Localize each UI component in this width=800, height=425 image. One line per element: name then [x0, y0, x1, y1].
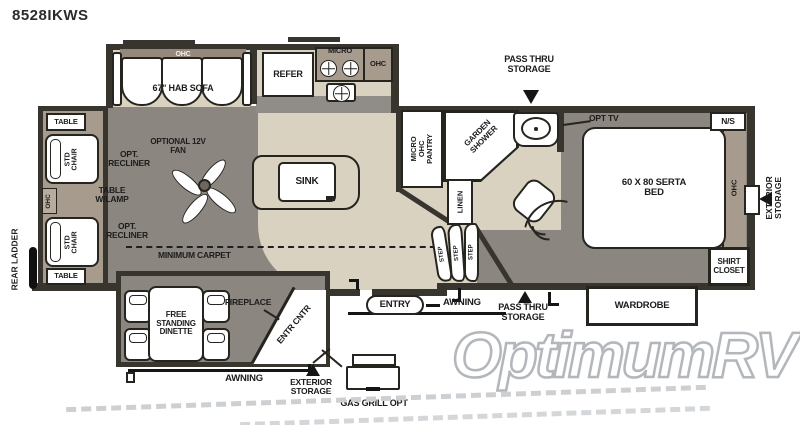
- entry-door: ENTRY: [366, 295, 424, 315]
- opt-recliner-2-label: OPT. RECLINER: [98, 222, 156, 240]
- ext-storage-right-label: EXTERIOR STORAGE: [765, 176, 783, 219]
- refer-label: REFER: [273, 70, 303, 80]
- dinette-table: FREE STANDING DINETTE: [148, 286, 204, 362]
- sofa: [121, 57, 243, 106]
- table-lamp-label: TABLE W/LAMP: [88, 186, 136, 204]
- awning-right-label: AWNING: [443, 298, 493, 308]
- step-label: STEP: [468, 245, 474, 261]
- burner-icon: [320, 60, 337, 77]
- counter-dashed-line: [315, 81, 393, 82]
- floorplan: 8528IKWS TABLE STD CHAIR OHC STD CHAIR T…: [0, 0, 800, 425]
- table-bottom-box: TABLE: [46, 268, 86, 285]
- sofa-cushion: [161, 57, 203, 106]
- ext-storage-right-labelwrap: EXTERIOR STORAGE: [756, 170, 792, 226]
- ext-storage-bottom-label: EXTERIOR STORAGE: [280, 378, 342, 396]
- sink-faucet: [326, 196, 335, 201]
- rear-ladder-label: REAR LADDER: [11, 228, 20, 290]
- min-carpet-label: MINIMUM CARPET: [158, 251, 268, 260]
- fireplace-label: FIREPLACE: [220, 298, 276, 307]
- std-chair-1-labelwrap: STD CHAIR: [45, 134, 99, 184]
- rear-ladder-icon: [29, 247, 37, 289]
- awning-end-bracket: [126, 372, 135, 383]
- table-bottom-label: TABLE: [54, 272, 77, 280]
- table-top-box: TABLE: [46, 113, 86, 131]
- door-hinge-mark: [349, 279, 357, 282]
- shirt-closet: SHIRT CLOSET: [708, 247, 750, 286]
- watermark-road-line: [240, 406, 710, 425]
- table-top-label: TABLE: [54, 118, 77, 126]
- sofa-cushion: [201, 57, 243, 106]
- sofa-armrest-right: [242, 52, 252, 106]
- left-ohc-labelwrap: OHC: [40, 188, 59, 214]
- watermark: OptimumRV: [452, 318, 795, 392]
- dinette-chair: [202, 328, 230, 361]
- slide-topper-bar-right: [288, 37, 340, 42]
- awning-line-left: [128, 369, 310, 372]
- bed: 60 X 80 SERTA BED: [582, 127, 726, 249]
- up-arrow-icon: [306, 364, 320, 376]
- door-hinge-mark: [551, 303, 559, 306]
- down-arrow-icon: [523, 90, 539, 104]
- fan-label: OPTIONAL 12V FAN: [146, 138, 210, 155]
- sofa-cushion: [121, 57, 163, 106]
- pantry-labelwrap: MICRO OHC PANTRY: [401, 110, 443, 188]
- linen-label: LINEN: [456, 191, 464, 214]
- step-label: STEP: [437, 246, 446, 262]
- kitchen-counter: [256, 96, 393, 113]
- page-title: 8528IKWS: [12, 8, 89, 24]
- refrigerator: REFER: [262, 52, 314, 97]
- step-label: STEP: [453, 245, 460, 261]
- left-ohc-label: OHC: [46, 194, 53, 208]
- micro-label: MICRO: [318, 47, 362, 55]
- wardrobe-label: WARDROBE: [615, 301, 670, 311]
- shirt-closet-label: SHIRT CLOSET: [711, 258, 747, 275]
- burner-icon: [342, 60, 359, 77]
- gas-grill-icon: [352, 354, 396, 366]
- dinette-label: FREE STANDING DINETTE: [151, 311, 201, 337]
- entry-label: ENTRY: [380, 300, 411, 310]
- sink-label: SINK: [295, 177, 318, 188]
- std-chair-2-label: STD CHAIR: [65, 227, 80, 257]
- opt-tv-label: OPT TV: [589, 114, 631, 123]
- std-chair-1-label: STD CHAIR: [65, 144, 80, 174]
- bed-ohc-label: OHC: [730, 180, 738, 197]
- pantry-label: MICRO OHC PANTRY: [410, 128, 434, 170]
- awning-left-label: AWNING: [214, 374, 274, 384]
- linen-labelwrap: LINEN: [447, 179, 473, 225]
- min-carpet-line: [126, 246, 446, 248]
- sofa-label: 67" HAB SOFA: [136, 84, 230, 94]
- burner-icon: [333, 85, 350, 102]
- std-chair-2-labelwrap: STD CHAIR: [45, 217, 99, 267]
- vanity-faucet-dot: [534, 127, 538, 131]
- kitchen-ohc-label: OHC: [370, 60, 386, 68]
- bed-label: 60 X 80 SERTA BED: [621, 178, 687, 199]
- entry-awning-dash: [426, 304, 440, 307]
- gas-grill-handle: [366, 387, 380, 391]
- rear-ladder-labelwrap: REAR LADDER: [0, 224, 30, 294]
- wall-bottom-mid-left: [326, 289, 360, 296]
- nightstand-label: N/S: [721, 117, 735, 126]
- step: STEP: [464, 223, 479, 282]
- kitchen-ohc-cabinet: OHC: [363, 47, 393, 82]
- nightstand: N/S: [710, 112, 746, 131]
- fan-hub-icon: [198, 179, 211, 192]
- slide-topper-bar-left: [123, 40, 195, 45]
- pass-thru-top-label: PASS THRU STORAGE: [494, 55, 564, 74]
